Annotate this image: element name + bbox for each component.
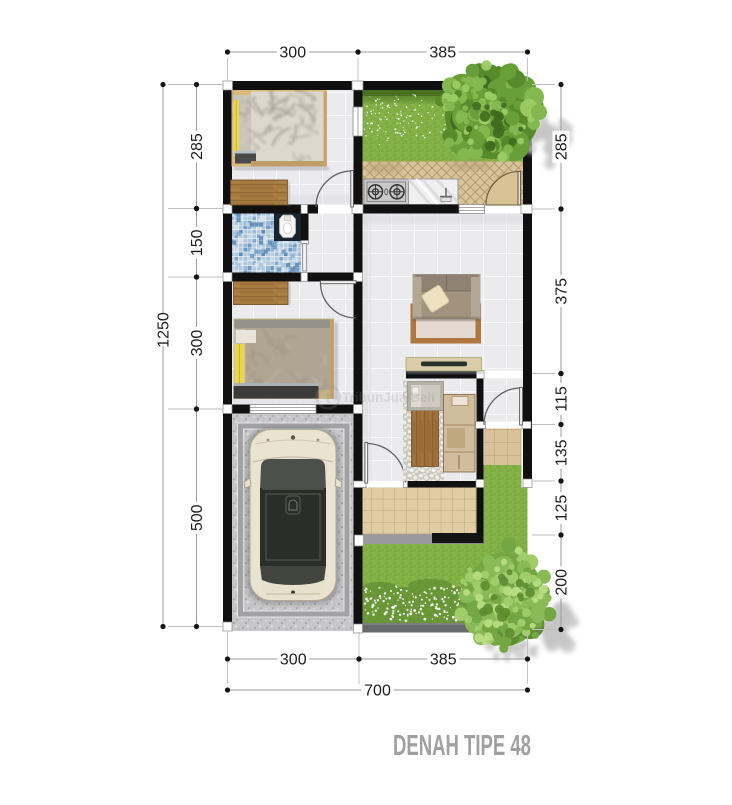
svg-text:1250: 1250 — [156, 312, 173, 348]
svg-text:TribunJualBeli: TribunJualBeli — [342, 390, 435, 405]
svg-text:t: t — [325, 390, 331, 407]
svg-text:500: 500 — [189, 504, 206, 531]
svg-text:DENAH TIPE 48: DENAH TIPE 48 — [393, 730, 531, 762]
svg-text:285: 285 — [189, 133, 206, 160]
svg-text:125: 125 — [554, 495, 571, 522]
svg-text:135: 135 — [554, 439, 571, 466]
svg-text:200: 200 — [554, 569, 571, 596]
svg-text:285: 285 — [554, 133, 571, 160]
svg-text:300: 300 — [280, 652, 307, 669]
svg-text:150: 150 — [189, 229, 206, 256]
svg-text:300: 300 — [279, 45, 306, 62]
svg-text:385: 385 — [429, 45, 456, 62]
svg-text:700: 700 — [364, 683, 391, 700]
svg-text:115: 115 — [554, 386, 571, 412]
svg-text:375: 375 — [554, 278, 571, 305]
svg-text:300: 300 — [189, 330, 206, 357]
svg-text:385: 385 — [430, 652, 457, 669]
